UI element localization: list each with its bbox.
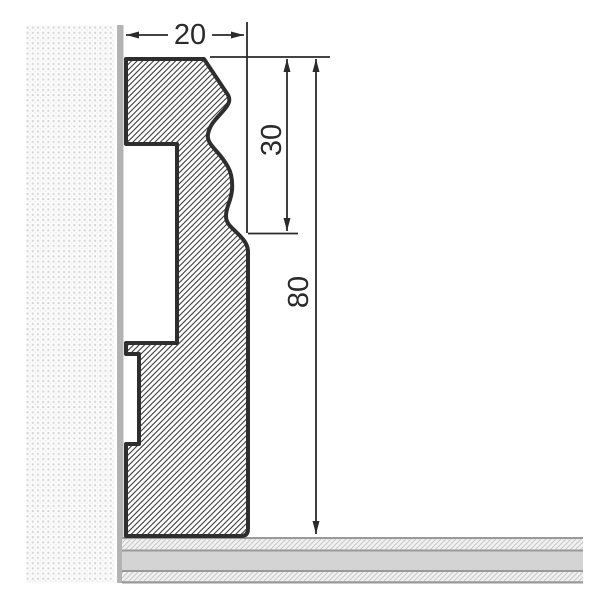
floor-core-layer xyxy=(122,552,583,571)
skirting-profile xyxy=(126,59,248,536)
wall-plaster-texture xyxy=(26,25,115,583)
arrowhead-right xyxy=(231,32,244,39)
dimension-label-width: 20 xyxy=(174,19,206,51)
floor-bottom-edge xyxy=(122,581,583,583)
floor-divider-line-1 xyxy=(122,550,583,552)
floor-upper-screed-layer xyxy=(122,539,583,549)
arrowhead-up xyxy=(313,59,320,72)
dimension-label-total-height: 80 xyxy=(283,276,315,308)
arrowhead-up xyxy=(284,59,291,72)
wall-section xyxy=(26,25,124,583)
floor-lower-screed-layer xyxy=(122,572,583,581)
arrowhead-down xyxy=(284,218,291,231)
floor-divider-line-2 xyxy=(122,570,583,572)
skirting-profile-drawing: 20 30 80 xyxy=(0,0,604,604)
floor-section xyxy=(122,537,583,584)
arrowhead-down xyxy=(313,521,320,534)
dimension-label-upper-height: 30 xyxy=(256,124,288,156)
technical-drawing-canvas: 20 30 80 xyxy=(0,0,604,604)
wall-surface-line xyxy=(117,25,124,583)
arrowhead-left xyxy=(126,32,139,39)
